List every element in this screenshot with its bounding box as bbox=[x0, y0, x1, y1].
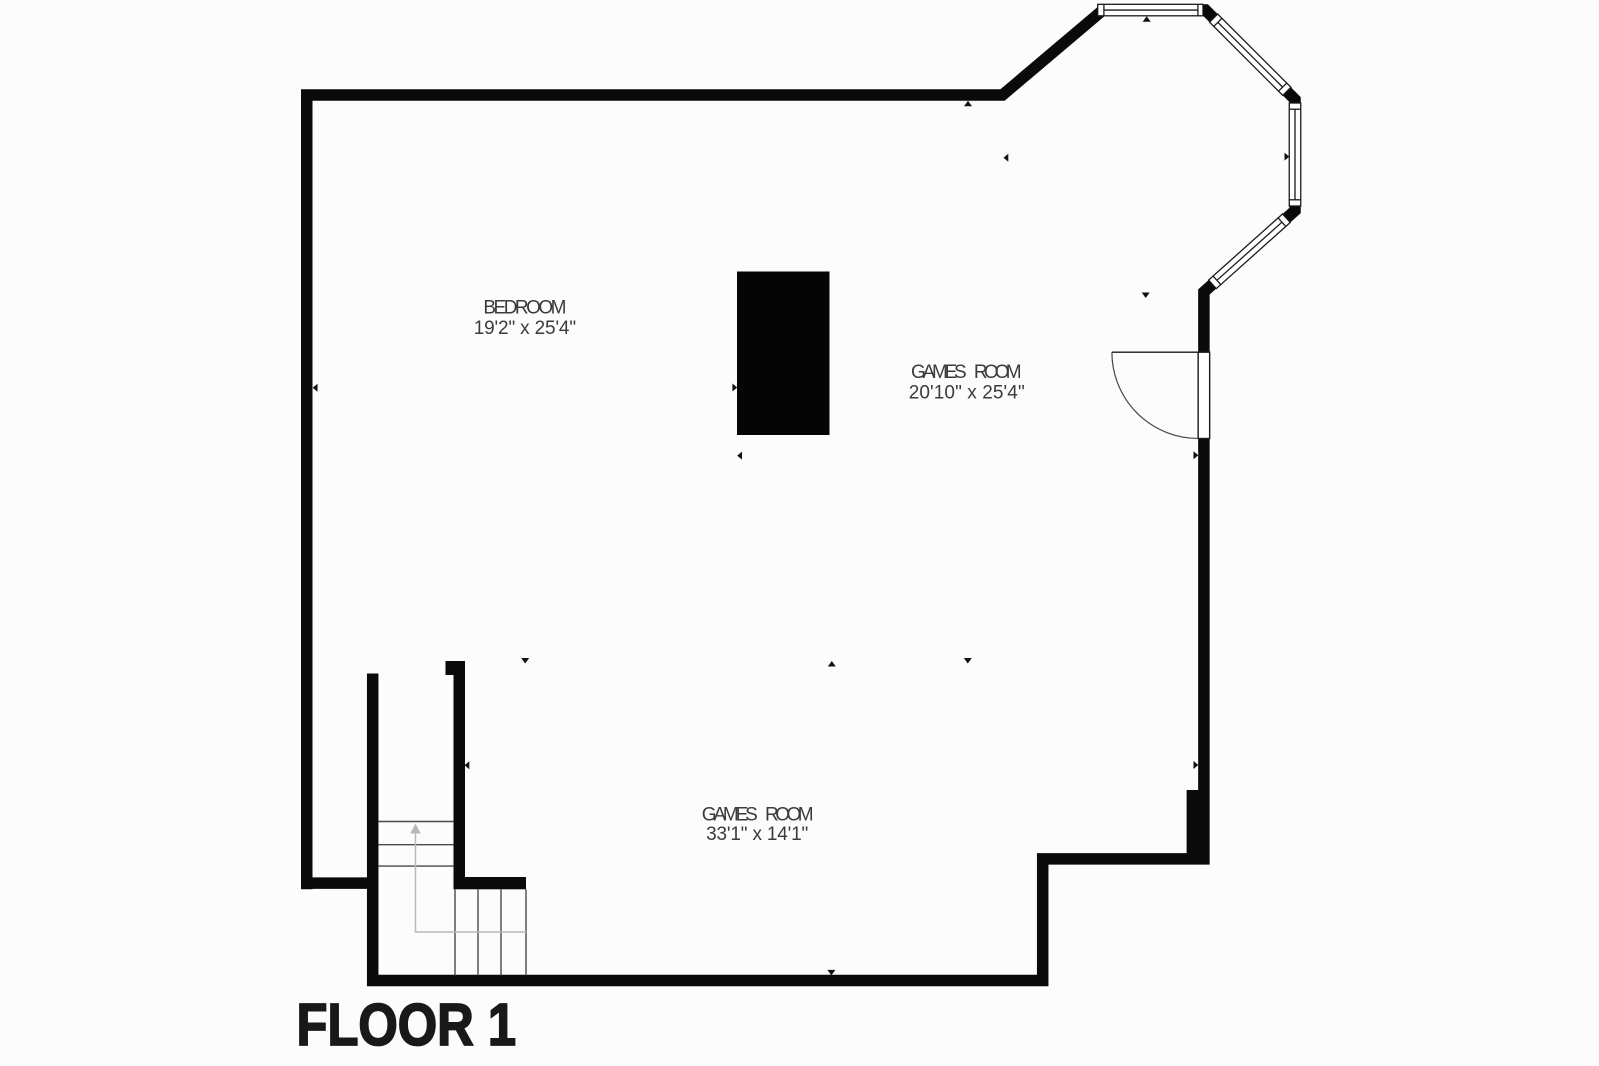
svg-text:20'10" x 25'4": 20'10" x 25'4" bbox=[909, 383, 1025, 404]
svg-text:GAMES: GAMES bbox=[702, 804, 758, 825]
svg-text:ROOM: ROOM bbox=[974, 362, 1022, 383]
svg-text:FLOOR 1: FLOOR 1 bbox=[297, 992, 517, 1058]
svg-text:ROOM: ROOM bbox=[765, 804, 814, 825]
svg-text:GAMES: GAMES bbox=[911, 362, 967, 383]
svg-text:33'1" x 14'1": 33'1" x 14'1" bbox=[706, 824, 808, 845]
svg-text:BEDROOM: BEDROOM bbox=[483, 298, 566, 319]
svg-text:19'2" x 25'4": 19'2" x 25'4" bbox=[474, 318, 576, 339]
